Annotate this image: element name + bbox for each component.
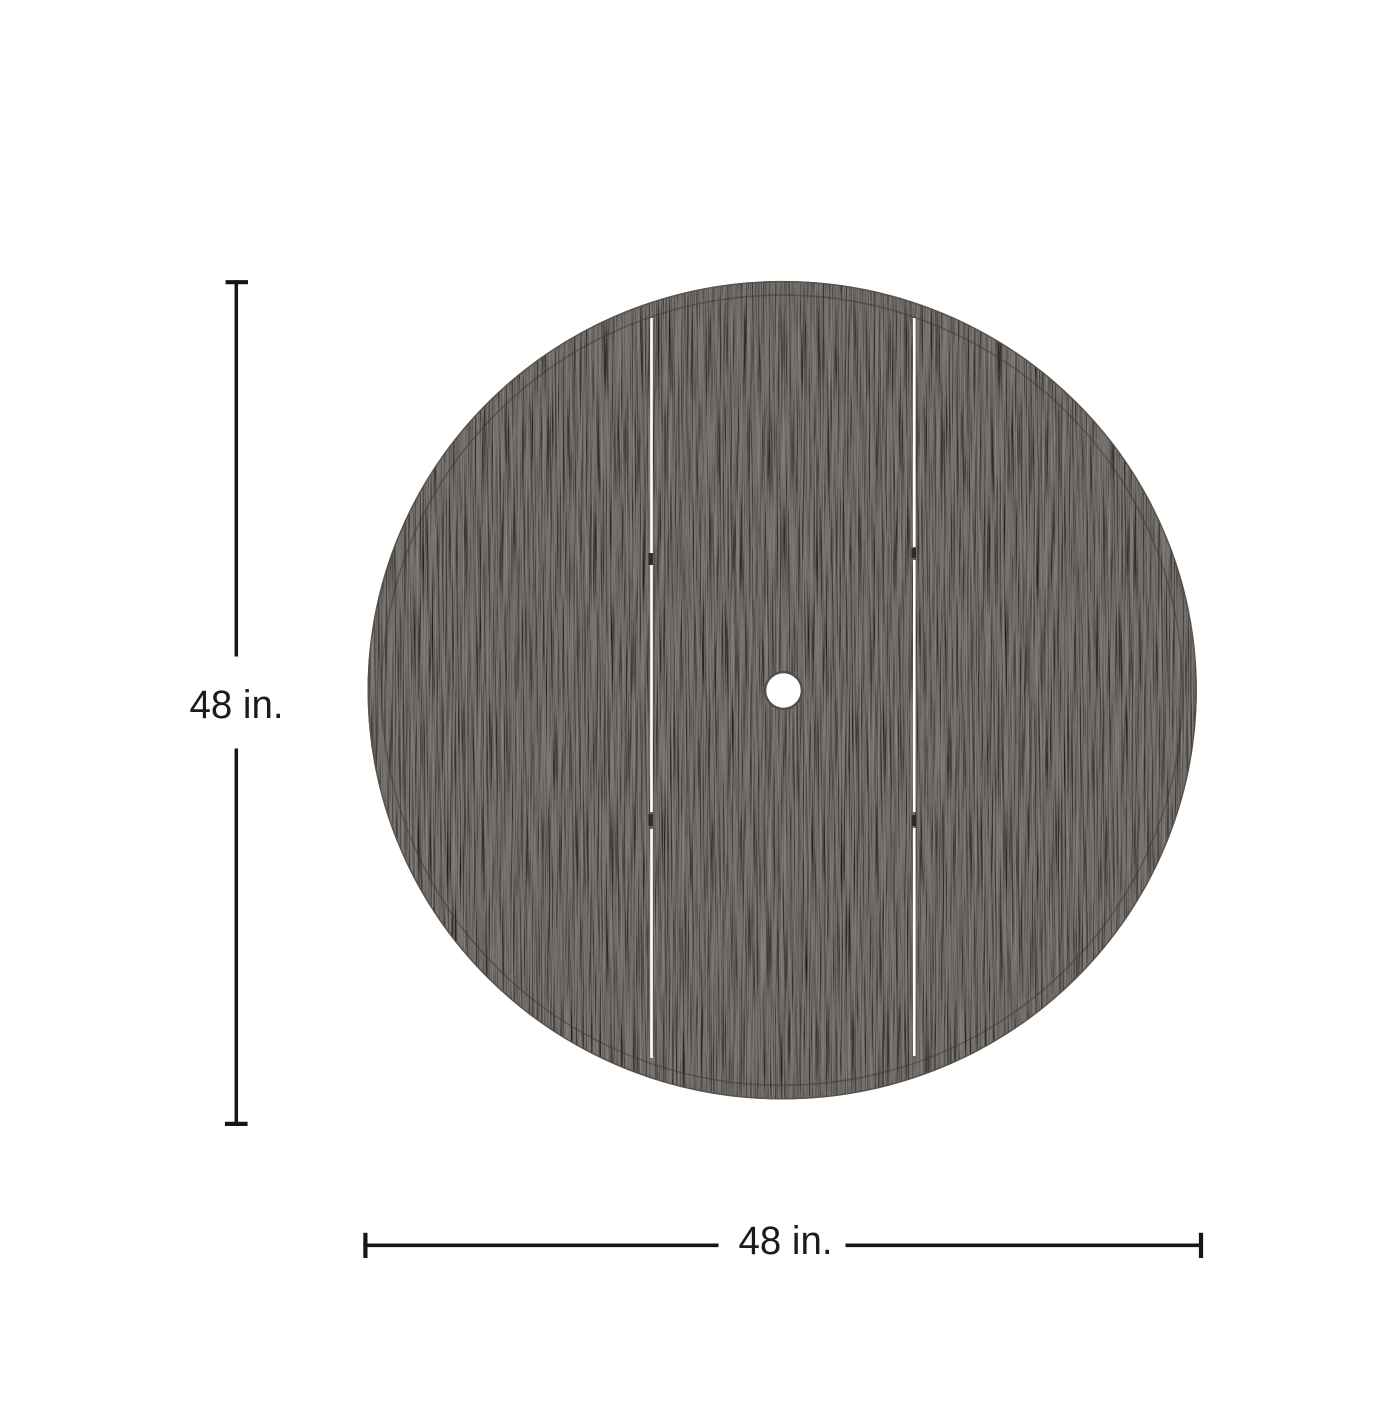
svg-text:48 in.: 48 in. — [739, 1219, 833, 1263]
svg-text:48 in.: 48 in. — [190, 683, 284, 727]
